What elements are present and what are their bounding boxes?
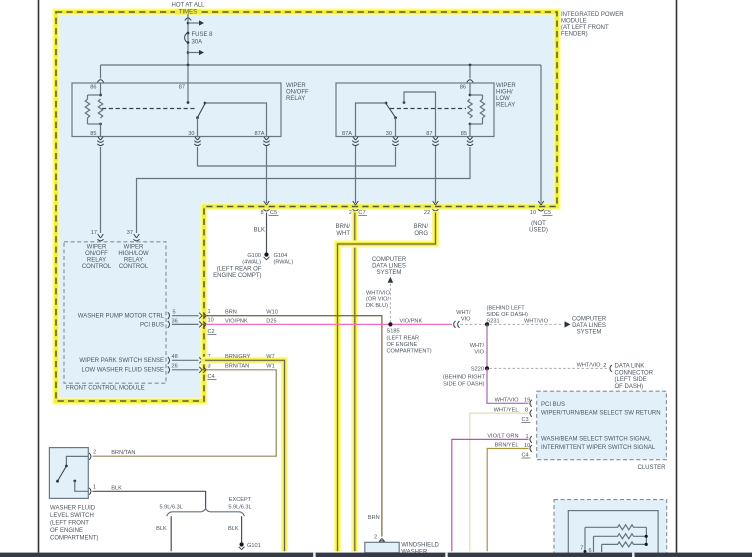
svg-text:W7: W7 bbox=[266, 354, 274, 360]
svg-text:W10: W10 bbox=[266, 310, 278, 316]
svg-text:BRN/YEL: BRN/YEL bbox=[495, 443, 519, 449]
svg-text:ORG: ORG bbox=[414, 231, 428, 237]
svg-text:19: 19 bbox=[524, 398, 530, 404]
svg-text:VIO/PNK: VIO/PNK bbox=[400, 318, 423, 324]
svg-text:G104: G104 bbox=[274, 253, 288, 259]
svg-text:FRONT CONTROL MODULE: FRONT CONTROL MODULE bbox=[66, 385, 145, 391]
svg-text:BLK: BLK bbox=[156, 526, 167, 532]
svg-text:COMPARTMENT): COMPARTMENT) bbox=[387, 349, 432, 355]
svg-text:USED): USED) bbox=[529, 228, 548, 234]
svg-text:COMPUTER: COMPUTER bbox=[372, 257, 407, 263]
svg-text:WHT/YEL: WHT/YEL bbox=[494, 407, 519, 413]
svg-text:RELAY: RELAY bbox=[496, 102, 515, 108]
svg-text:(4WAL): (4WAL) bbox=[242, 260, 261, 266]
svg-text:(LEFT REAR: (LEFT REAR bbox=[387, 336, 420, 342]
svg-text:WHT/VIO: WHT/VIO bbox=[577, 362, 602, 368]
svg-text:WHT/VIO: WHT/VIO bbox=[366, 291, 391, 297]
svg-text:FENDER): FENDER) bbox=[561, 32, 588, 38]
svg-text:ENGINE COMPT): ENGINE COMPT) bbox=[213, 273, 261, 279]
svg-text:2: 2 bbox=[603, 363, 606, 369]
svg-text:COMPUTER: COMPUTER bbox=[572, 316, 607, 322]
svg-text:HIGH/: HIGH/ bbox=[496, 89, 513, 95]
svg-text:87: 87 bbox=[179, 85, 185, 91]
svg-text:LEVEL SWITCH: LEVEL SWITCH bbox=[50, 513, 94, 519]
svg-text:WIPER: WIPER bbox=[87, 245, 107, 251]
svg-text:(AT LEFT FRONT: (AT LEFT FRONT bbox=[561, 25, 609, 31]
svg-text:DATA LINK: DATA LINK bbox=[615, 364, 645, 370]
svg-text:WIPER: WIPER bbox=[286, 83, 306, 89]
svg-text:(LEFT SIDE: (LEFT SIDE bbox=[615, 377, 647, 383]
svg-text:87A: 87A bbox=[255, 131, 265, 137]
svg-text:G101: G101 bbox=[247, 543, 261, 549]
svg-text:BLK: BLK bbox=[228, 526, 239, 532]
svg-text:RELAY: RELAY bbox=[286, 96, 305, 102]
svg-text:VIO: VIO bbox=[474, 350, 484, 356]
svg-text:BRN/: BRN/ bbox=[336, 224, 351, 230]
svg-text:S220: S220 bbox=[471, 367, 484, 373]
svg-text:(BEHIND LEFT: (BEHIND LEFT bbox=[487, 305, 526, 311]
svg-text:85: 85 bbox=[461, 131, 467, 137]
svg-text:85: 85 bbox=[90, 131, 96, 137]
svg-text:10: 10 bbox=[524, 443, 530, 449]
svg-text:BRN: BRN bbox=[225, 310, 237, 316]
svg-text:10: 10 bbox=[530, 210, 536, 216]
svg-text:SYSTEM: SYSTEM bbox=[577, 329, 602, 335]
svg-text:(LEFT FRONT: (LEFT FRONT bbox=[50, 521, 89, 527]
svg-text:WHT/: WHT/ bbox=[470, 343, 485, 349]
svg-text:VIO: VIO bbox=[461, 316, 471, 322]
svg-text:(BEHIND RIGHT: (BEHIND RIGHT bbox=[443, 374, 486, 380]
svg-text:VIO/PNK: VIO/PNK bbox=[225, 318, 248, 324]
svg-text:36: 36 bbox=[172, 318, 178, 324]
svg-text:WINDSHIELD: WINDSHIELD bbox=[401, 542, 439, 548]
svg-text:5: 5 bbox=[173, 310, 176, 316]
svg-text:86: 86 bbox=[460, 85, 466, 91]
svg-text:WIPER: WIPER bbox=[124, 245, 144, 251]
svg-text:8: 8 bbox=[525, 408, 528, 414]
svg-text:INTEGRATED POWER: INTEGRATED POWER bbox=[561, 12, 624, 18]
svg-text:BLK: BLK bbox=[111, 485, 122, 491]
svg-text:BRN/GRY: BRN/GRY bbox=[225, 354, 251, 360]
svg-text:CLUSTER: CLUSTER bbox=[637, 465, 666, 471]
svg-text:WIPER: WIPER bbox=[496, 83, 516, 89]
svg-text:30A: 30A bbox=[192, 40, 203, 46]
svg-text:2: 2 bbox=[374, 534, 377, 540]
svg-text:DK BLU): DK BLU) bbox=[366, 303, 388, 309]
svg-text:BRN/TAN: BRN/TAN bbox=[225, 364, 249, 370]
svg-text:S185: S185 bbox=[387, 328, 400, 334]
svg-text:86: 86 bbox=[90, 85, 96, 91]
svg-text:INTERMITTENT WIPER SWITCH SIGN: INTERMITTENT WIPER SWITCH SIGNAL bbox=[541, 445, 656, 451]
svg-text:CONTROL: CONTROL bbox=[119, 264, 149, 270]
svg-text:(LEFT REAR OF: (LEFT REAR OF bbox=[217, 267, 262, 273]
svg-text:10: 10 bbox=[208, 318, 214, 324]
svg-text:BLK: BLK bbox=[254, 228, 265, 234]
svg-text:(NOT: (NOT bbox=[531, 221, 546, 227]
svg-text:WIPER PARK SWITCH SENSE: WIPER PARK SWITCH SENSE bbox=[79, 358, 164, 364]
svg-text:(RWAL): (RWAL) bbox=[274, 260, 294, 266]
svg-text:WASHER FLUID: WASHER FLUID bbox=[50, 506, 96, 512]
svg-text:OF ENGINE: OF ENGINE bbox=[50, 528, 83, 534]
svg-text:EXCEPT: EXCEPT bbox=[229, 497, 252, 503]
svg-text:LOW WASHER FLUID SENSE: LOW WASHER FLUID SENSE bbox=[82, 368, 164, 374]
svg-text:OF DASH): OF DASH) bbox=[615, 384, 644, 390]
svg-text:BRN/TAN: BRN/TAN bbox=[111, 450, 135, 456]
svg-text:SIDE OF DASH): SIDE OF DASH) bbox=[487, 312, 528, 318]
svg-text:2: 2 bbox=[93, 450, 96, 456]
svg-text:5.9L/6.3L: 5.9L/6.3L bbox=[228, 505, 251, 511]
svg-text:COMPARTMENT): COMPARTMENT) bbox=[50, 536, 98, 542]
svg-text:LOW: LOW bbox=[496, 96, 510, 102]
svg-text:WHT: WHT bbox=[336, 231, 350, 237]
svg-text:BRN/: BRN/ bbox=[414, 224, 429, 230]
svg-text:30: 30 bbox=[386, 131, 392, 137]
svg-text:48: 48 bbox=[172, 354, 178, 360]
svg-text:PCI BUS: PCI BUS bbox=[541, 402, 565, 408]
svg-text:WIPER/TURN/BEAM SELECT SW RETU: WIPER/TURN/BEAM SELECT SW RETURN bbox=[541, 411, 661, 417]
svg-text:RELAY: RELAY bbox=[87, 258, 106, 264]
svg-text:ON/OFF: ON/OFF bbox=[85, 251, 108, 257]
svg-text:VIO/LT GRN: VIO/LT GRN bbox=[487, 434, 518, 440]
svg-text:5.9L/6.3L: 5.9L/6.3L bbox=[160, 505, 183, 511]
svg-text:HOT AT ALL: HOT AT ALL bbox=[171, 3, 205, 9]
svg-text:HIGH/LOW: HIGH/LOW bbox=[118, 251, 149, 257]
svg-text:(OR VIO/: (OR VIO/ bbox=[366, 297, 389, 303]
svg-text:7: 7 bbox=[580, 546, 583, 552]
svg-text:RELAY: RELAY bbox=[124, 258, 143, 264]
svg-text:22: 22 bbox=[424, 210, 430, 216]
svg-text:SIDE OF DASH): SIDE OF DASH) bbox=[443, 382, 484, 388]
svg-text:87A: 87A bbox=[342, 131, 352, 137]
svg-text:SYSTEM: SYSTEM bbox=[377, 270, 402, 276]
svg-text:8: 8 bbox=[260, 210, 263, 216]
svg-text:WHT/VIO: WHT/VIO bbox=[524, 318, 549, 324]
svg-text:FUSE 8: FUSE 8 bbox=[192, 32, 214, 38]
svg-text:ON/OFF: ON/OFF bbox=[286, 89, 309, 95]
svg-text:DATA LINES: DATA LINES bbox=[572, 323, 606, 329]
svg-text:WHT/VIO: WHT/VIO bbox=[495, 397, 520, 403]
svg-text:1: 1 bbox=[526, 434, 529, 440]
svg-text:DATA LINES: DATA LINES bbox=[372, 264, 406, 270]
svg-text:BRN: BRN bbox=[368, 515, 380, 521]
svg-text:D25: D25 bbox=[266, 318, 276, 324]
svg-text:37: 37 bbox=[127, 230, 133, 236]
svg-text:OF ENGINE: OF ENGINE bbox=[387, 342, 418, 348]
svg-text:17: 17 bbox=[91, 230, 97, 236]
svg-text:1: 1 bbox=[93, 485, 96, 491]
svg-text:MODULE: MODULE bbox=[561, 19, 587, 25]
svg-text:CONTROL: CONTROL bbox=[82, 264, 112, 270]
svg-text:CONNECTOR: CONNECTOR bbox=[615, 370, 654, 376]
svg-text:30: 30 bbox=[188, 131, 194, 137]
svg-text:WASHER PUMP MOTOR CTRL: WASHER PUMP MOTOR CTRL bbox=[78, 314, 165, 320]
svg-text:3: 3 bbox=[208, 364, 211, 370]
svg-text:87: 87 bbox=[426, 131, 432, 137]
svg-text:G100: G100 bbox=[247, 253, 261, 259]
svg-text:WASH/BEAM SELECT SWITCH SIGNAL: WASH/BEAM SELECT SWITCH SIGNAL bbox=[541, 436, 652, 442]
svg-text:W1: W1 bbox=[266, 364, 274, 370]
svg-text:26: 26 bbox=[172, 364, 178, 370]
svg-text:1: 1 bbox=[208, 309, 211, 315]
svg-text:PCI BUS: PCI BUS bbox=[140, 322, 164, 328]
svg-text:WHT/: WHT/ bbox=[456, 310, 471, 316]
